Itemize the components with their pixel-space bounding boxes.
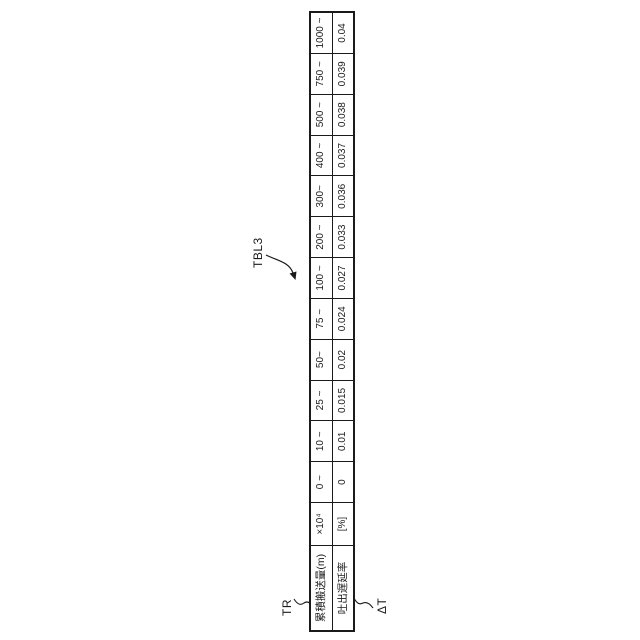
range-cell: 25 ~ [311, 381, 333, 421]
table-reference-label: TBL3 [252, 237, 264, 268]
range-cell: 10 ~ [311, 421, 333, 461]
table-header-column: 累積搬送量(m) 吐出遅延率 [311, 546, 353, 630]
range-cell: 50~ [311, 340, 333, 380]
range-cell: 750 ~ [311, 54, 333, 94]
delay-rate-table: 累積搬送量(m) 吐出遅延率 ×10⁴ [%] 0 ~ 0 10 ~ 0.01 … [309, 11, 355, 632]
table-column: 25 ~ 0.015 [311, 381, 353, 422]
value-cell: 0.02 [333, 340, 354, 380]
row1-reference-label: TR [281, 599, 293, 616]
table-column: 50~ 0.02 [311, 340, 353, 381]
value-cell: 0.033 [333, 217, 354, 257]
range-cell: 400 ~ [311, 136, 333, 176]
table-column: 200 ~ 0.033 [311, 217, 353, 258]
value-cell: 0.027 [333, 258, 354, 298]
value-cell: 0.024 [333, 299, 354, 339]
value-cell: 0.04 [333, 13, 354, 53]
tbl3-arrowhead [290, 272, 297, 281]
table-column: 10 ~ 0.01 [311, 421, 353, 462]
value-cell: 0.038 [333, 95, 354, 135]
table-column: 0 ~ 0 [311, 462, 353, 503]
delta-t-leader-line [354, 598, 373, 608]
table-column: 400 ~ 0.037 [311, 136, 353, 177]
table-unit-column: ×10⁴ [%] [311, 503, 353, 546]
value-cell: 0.037 [333, 136, 354, 176]
value-cell: 0 [333, 462, 354, 502]
value-cell: 0.036 [333, 176, 354, 216]
row-header-cumulative-transport: 累積搬送量(m) [311, 546, 333, 630]
value-cell: 0.01 [333, 421, 354, 461]
unit-cell-percent: [%] [333, 503, 354, 545]
value-cell: 0.039 [333, 54, 354, 94]
table-column: 1000 ~ 0.04 [311, 13, 353, 54]
table-column: 750 ~ 0.039 [311, 54, 353, 95]
range-cell: 500 ~ [311, 95, 333, 135]
value-cell: 0.015 [333, 381, 354, 421]
tbl3-arrow [266, 255, 293, 273]
table-column: 500 ~ 0.038 [311, 95, 353, 136]
range-cell: 1000 ~ [311, 13, 333, 53]
range-cell: 100 ~ [311, 258, 333, 298]
figure-canvas: TBL3 TR ΔT 累積搬送量(m) 吐出遅延率 ×10⁴ [%] 0 ~ 0… [0, 0, 640, 640]
unit-cell-x10e4: ×10⁴ [311, 503, 333, 545]
row2-reference-label: ΔT [376, 598, 388, 614]
range-cell: 75 ~ [311, 299, 333, 339]
range-cell: 0 ~ [311, 462, 333, 502]
row-header-discharge-delay-rate: 吐出遅延率 [333, 546, 354, 630]
range-cell: 200 ~ [311, 217, 333, 257]
table-column: 100 ~ 0.027 [311, 258, 353, 299]
range-cell: 300~ [311, 176, 333, 216]
table-column: 75 ~ 0.024 [311, 299, 353, 340]
table-column: 300~ 0.036 [311, 176, 353, 217]
